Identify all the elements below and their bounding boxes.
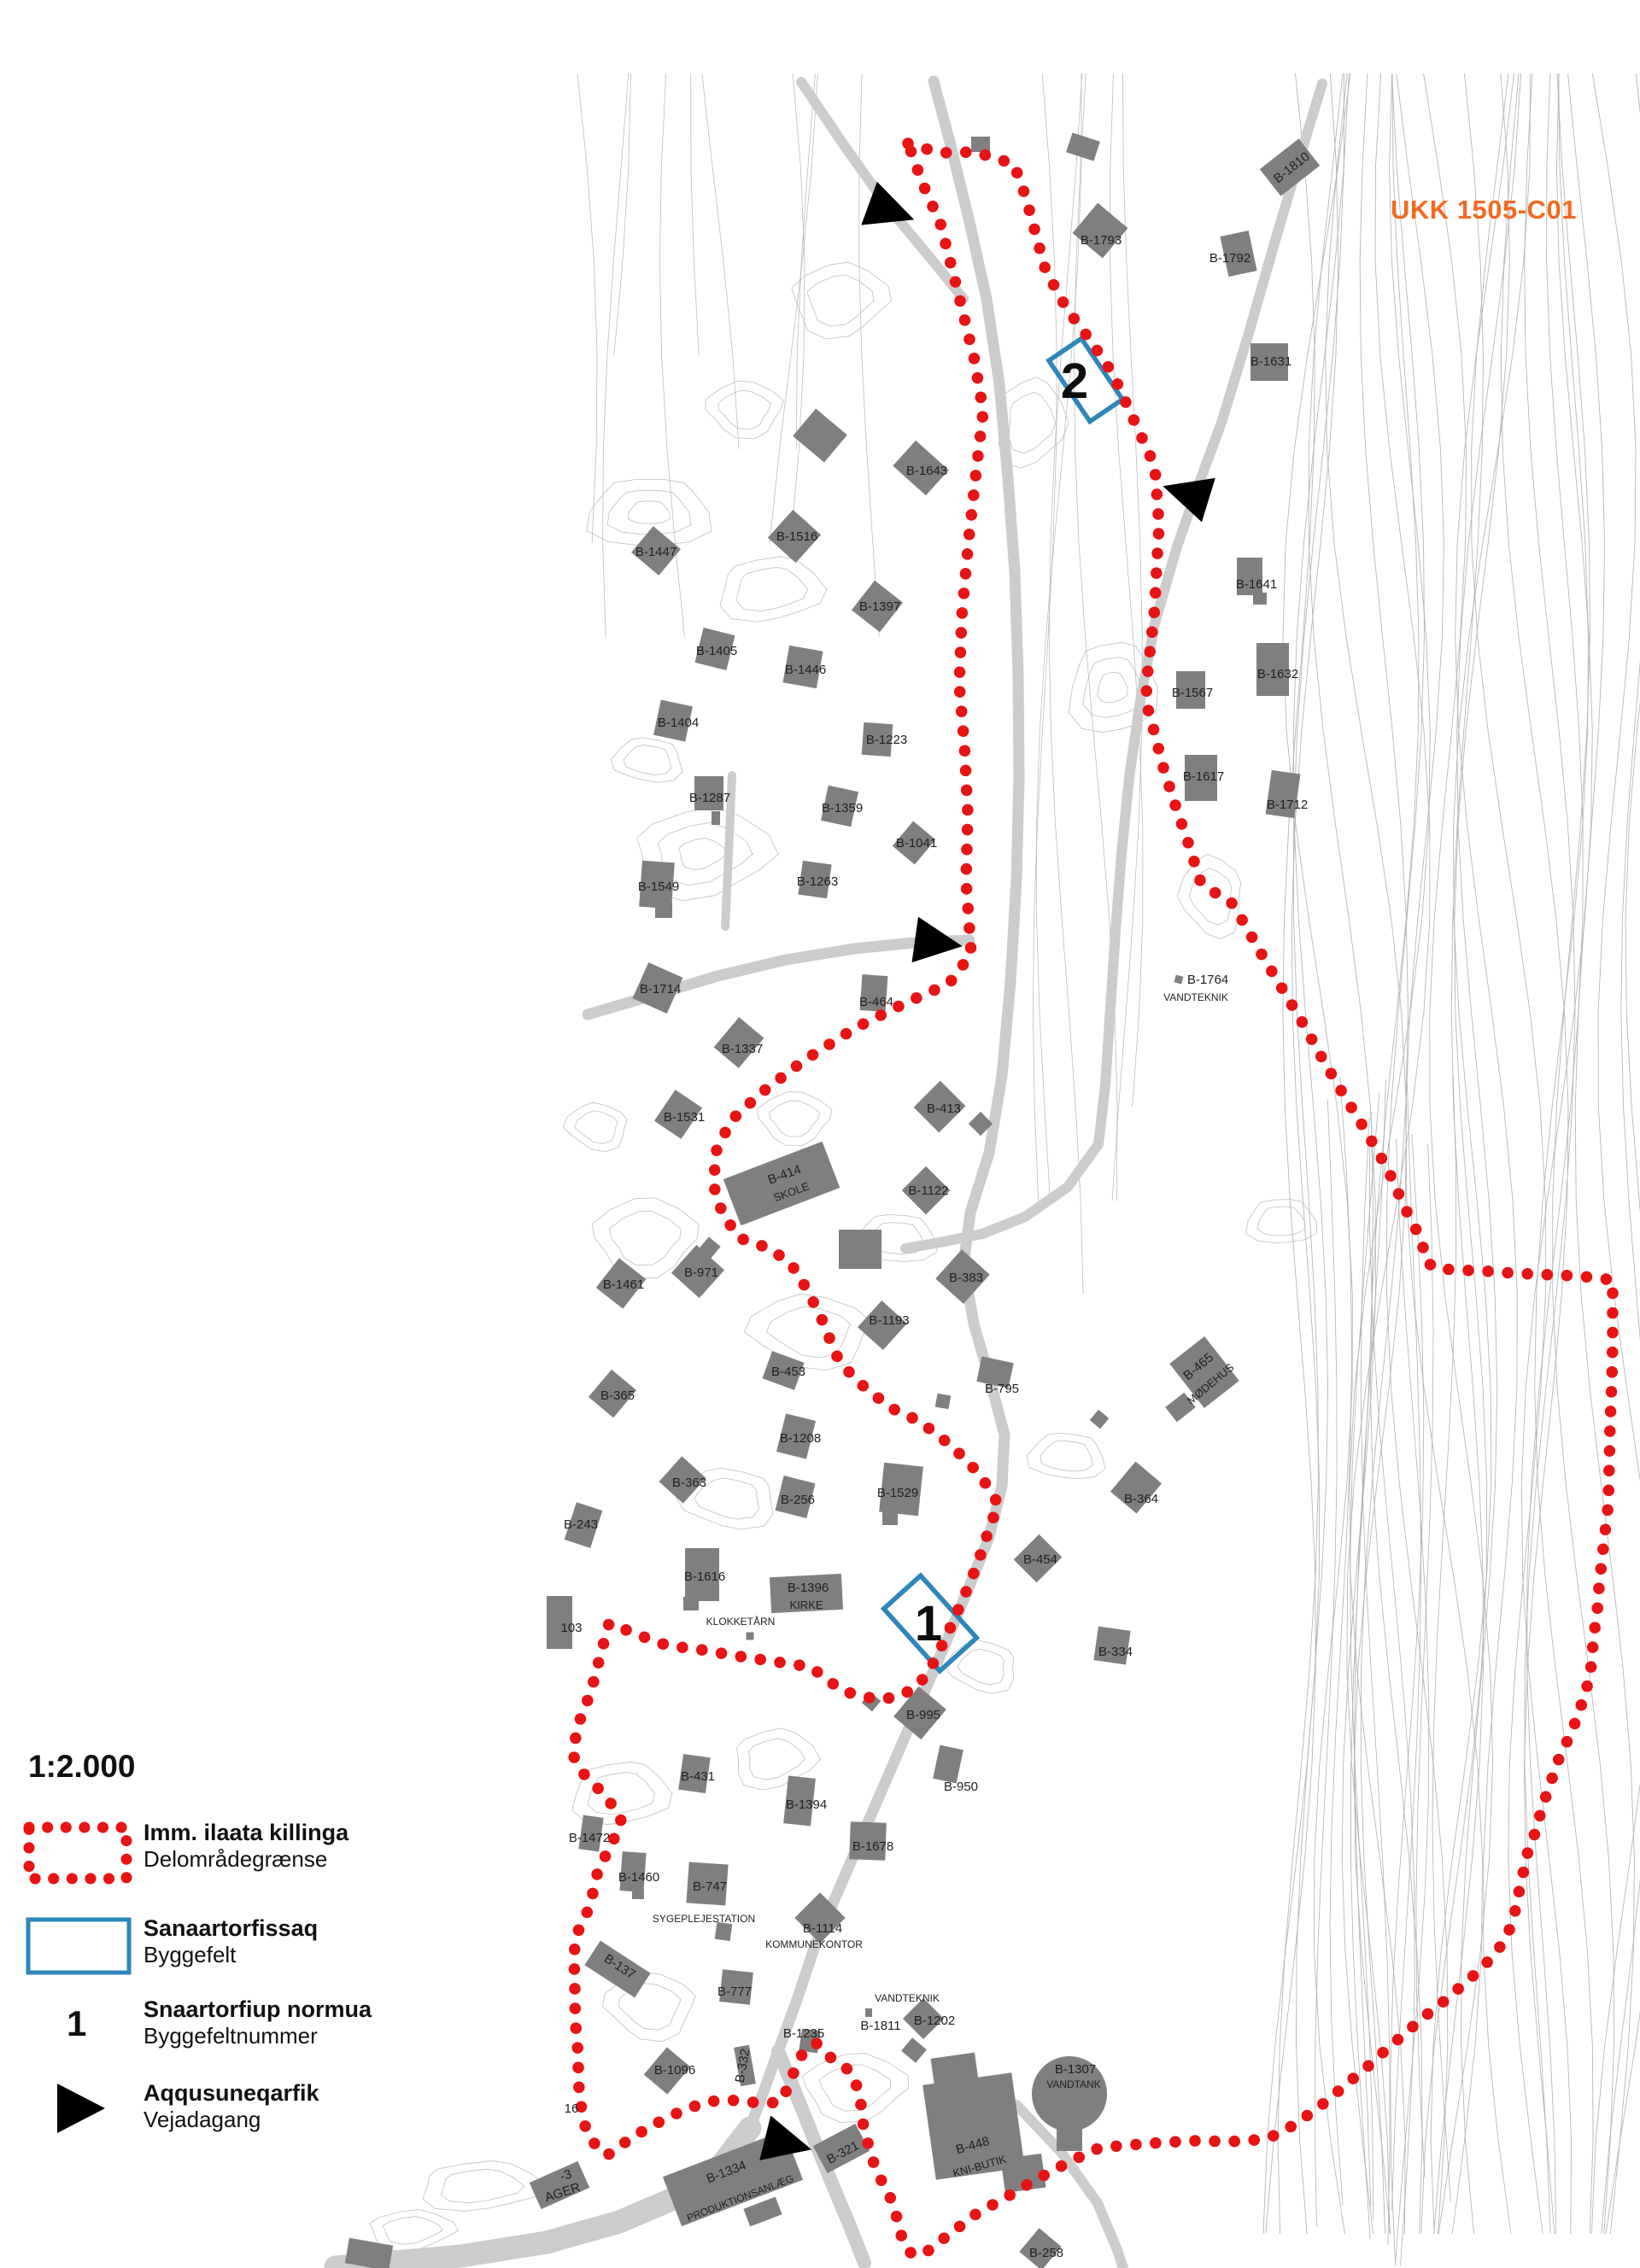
map-label: B-1307 <box>1055 2062 1096 2077</box>
map-label: KLOKKETÅRN <box>706 1615 776 1628</box>
map-label: B-1460 <box>618 1870 659 1885</box>
building <box>933 1745 963 1784</box>
building <box>1073 203 1128 259</box>
map-label: B-1643 <box>906 464 947 478</box>
map-label: B-454 <box>1023 1552 1057 1567</box>
map-label: B-413 <box>927 1102 961 1116</box>
map-label: B-363 <box>672 1476 706 1490</box>
map-label: B-1631 <box>1250 354 1291 369</box>
map-label: B-334 <box>1098 1645 1133 1659</box>
building <box>865 2008 872 2017</box>
map-label: B-383 <box>949 1271 983 1285</box>
map-label: B-1397 <box>859 599 900 614</box>
map-label: B-1114 <box>803 1921 842 1936</box>
map-label: B-1792 <box>1209 251 1250 266</box>
map-label: B-1516 <box>776 529 817 544</box>
building <box>1057 2129 1082 2151</box>
map-label: B-1472 <box>569 1831 610 1845</box>
map-label: B-1193 <box>869 1313 909 1328</box>
map-label: B-1041 <box>896 836 937 850</box>
building <box>839 1230 881 1269</box>
plan-code: UKK 1505-C01 <box>1391 195 1630 225</box>
building <box>655 903 672 918</box>
map-label: B-1714 <box>640 982 681 997</box>
road-access-icon <box>57 2084 108 2141</box>
map-label: B-950 <box>944 1780 978 1794</box>
legend-label-da: Delområdegrænse <box>143 1846 348 1872</box>
map-label: B-1263 <box>797 874 838 889</box>
building <box>632 1889 644 1899</box>
map-label: B-258 <box>1029 2246 1063 2260</box>
map-label: B-777 <box>717 1984 752 1999</box>
map-label: B-1287 <box>689 791 730 805</box>
map-label: VANDTANK <box>1046 2078 1101 2090</box>
map-label: B-1811 <box>860 2019 900 2033</box>
map-label: KIRKE <box>789 1599 823 1611</box>
building <box>930 2053 979 2093</box>
map-label: B-1616 <box>684 1569 725 1584</box>
map-label: B-1531 <box>664 1110 705 1125</box>
legend-label-da: Byggefeltnummer <box>143 2023 372 2049</box>
map-label: B-1394 <box>786 1797 827 1812</box>
map-label: B-1208 <box>780 1431 821 1446</box>
map-label: B-1764 <box>1187 973 1228 987</box>
building <box>683 1597 699 1610</box>
map-label: 103 <box>560 1621 582 1635</box>
building <box>743 2197 782 2227</box>
legend-label-da: Vejadagang <box>143 2107 319 2132</box>
map-label: KOMMUNEKONTOR <box>765 1938 863 1950</box>
building <box>1066 132 1100 161</box>
map-label: B-1641 <box>1236 577 1277 592</box>
legend-label-gl: Imm. ilaata killinga <box>143 1820 348 1846</box>
map-label: B-1447 <box>635 545 676 559</box>
building <box>1253 593 1267 605</box>
map-label: B-365 <box>600 1388 635 1403</box>
field-swatch-icon <box>26 1917 133 1981</box>
map-label: 16 <box>565 2101 579 2116</box>
legend-label-gl: Snaartorfiup normua <box>143 1996 372 2023</box>
map-label: B-1567 <box>1172 686 1213 700</box>
building <box>882 1511 898 1525</box>
map-label: B-1446 <box>785 663 826 677</box>
scale-label: 1:2.000 <box>28 1749 136 1785</box>
map-label: B-1632 <box>1257 667 1298 681</box>
map-label: B-453 <box>771 1365 805 1379</box>
map-label: B-995 <box>906 1708 940 1722</box>
map-label: B-364 <box>1124 1492 1158 1506</box>
map-label: B-1678 <box>852 1839 893 1854</box>
map-label: B-1405 <box>696 644 737 658</box>
map-label: B-971 <box>684 1266 718 1280</box>
map-label: B-1223 <box>866 733 907 747</box>
plan-sheet: 21B-1810B-1793B-1792B-1631B-1643B-1641B-… <box>0 0 1640 2268</box>
map-label: VANDTEKNIK <box>875 1992 940 2004</box>
map-label: B-431 <box>681 1769 715 1784</box>
boundary-swatch-icon <box>21 1820 134 1891</box>
legend-label-gl: Sanaartorfissaq <box>143 1915 318 1942</box>
map-label: VANDTEKNIK <box>1163 991 1228 1003</box>
field-number-example: 1 <box>67 2003 86 2044</box>
map-label: SYGEPLEJESTATION <box>653 1913 755 1925</box>
building <box>901 2037 927 2062</box>
map-label: B-1122 <box>908 1184 948 1198</box>
building <box>1174 974 1183 984</box>
map-label: B-243 <box>564 1517 598 1532</box>
building <box>747 1633 754 1640</box>
legend-label-da: Byggefelt <box>143 1942 318 1967</box>
map-label: B-1359 <box>822 801 863 815</box>
building <box>712 811 720 825</box>
map-label: B-1096 <box>654 2063 695 2078</box>
map-label: B-464 <box>859 995 893 1009</box>
map-label: B-1337 <box>722 1042 763 1056</box>
map-label: B-1793 <box>1081 233 1122 248</box>
map-label: B-1404 <box>658 716 699 730</box>
map-label: B-1549 <box>638 880 679 894</box>
map-label: B-256 <box>781 1493 815 1507</box>
map-label: B-1461 <box>603 1277 644 1292</box>
building <box>715 1922 733 1941</box>
byggefelt-number: 2 <box>1061 354 1088 409</box>
legend-label-gl: Aqqusuneqarfik <box>143 2080 319 2107</box>
map-label: B-1202 <box>914 2014 955 2028</box>
map-label: B-795 <box>985 1382 1019 1396</box>
map-label: B-1617 <box>1183 769 1224 784</box>
map-label: B-747 <box>693 1879 727 1894</box>
map-label: B-1396 <box>788 1581 829 1595</box>
building <box>1090 1410 1110 1429</box>
map-label: B-1712 <box>1267 798 1308 812</box>
building <box>935 1394 952 1410</box>
map-label: B-1529 <box>877 1486 918 1500</box>
map-label: B-1235 <box>783 2026 824 2041</box>
building <box>345 2238 393 2268</box>
